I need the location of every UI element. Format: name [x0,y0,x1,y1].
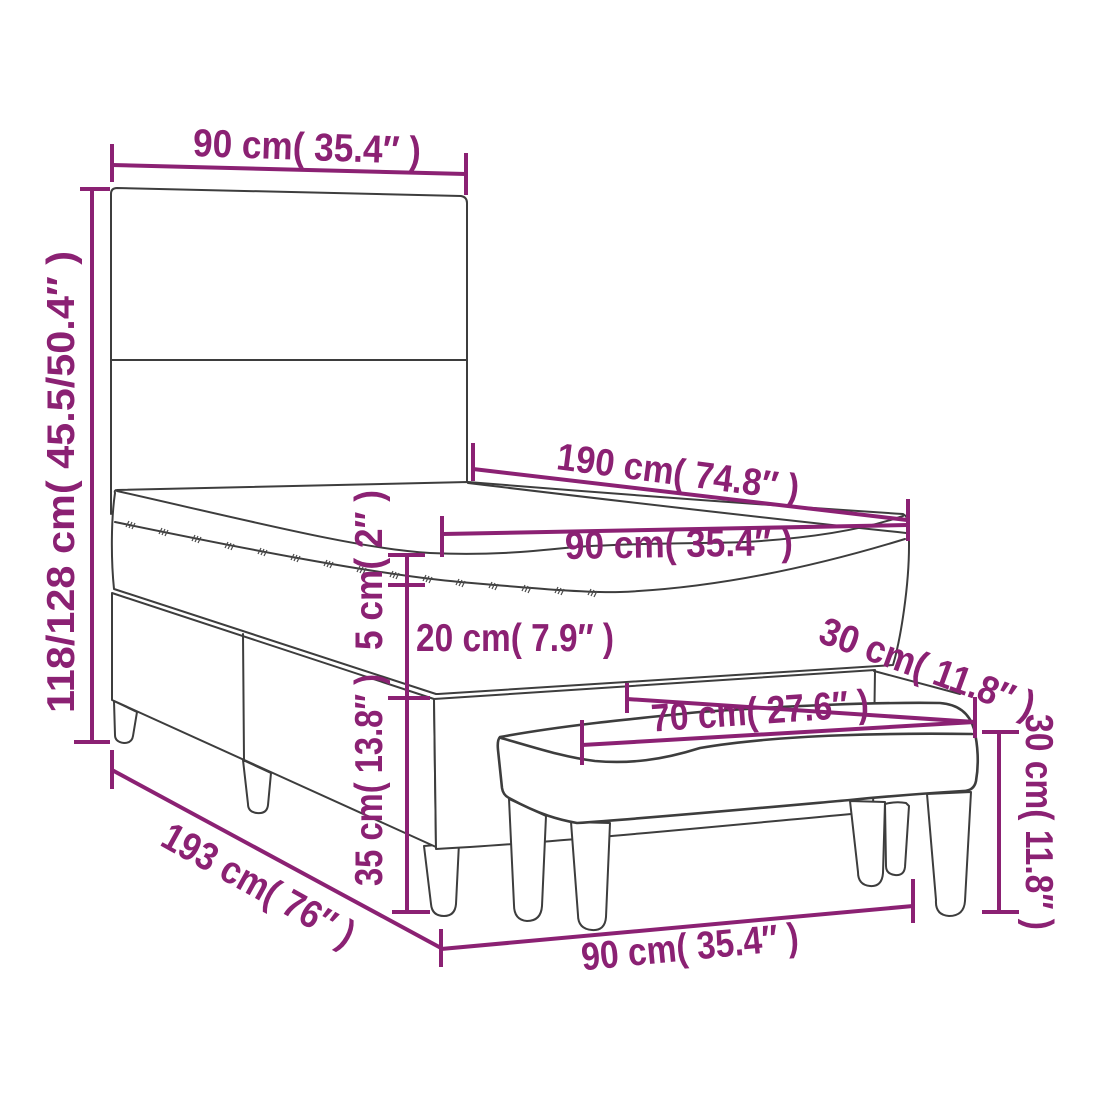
svg-text:118/128 cm( 45.5/50.4″ ): 118/128 cm( 45.5/50.4″ ) [40,251,83,713]
svg-text:90 cm( 35.4″ ): 90 cm( 35.4″ ) [565,521,794,568]
svg-text:30 cm( 11.8″ ): 30 cm( 11.8″ ) [1017,714,1060,930]
svg-text:90 cm( 35.4″ ): 90 cm( 35.4″ ) [192,122,421,173]
svg-text:5 cm( 2″ ): 5 cm( 2″ ) [348,490,391,650]
svg-text:35 cm( 13.8″ ): 35 cm( 13.8″ ) [348,674,391,886]
svg-text:20 cm( 7.9″ ): 20 cm( 7.9″ ) [416,617,614,660]
